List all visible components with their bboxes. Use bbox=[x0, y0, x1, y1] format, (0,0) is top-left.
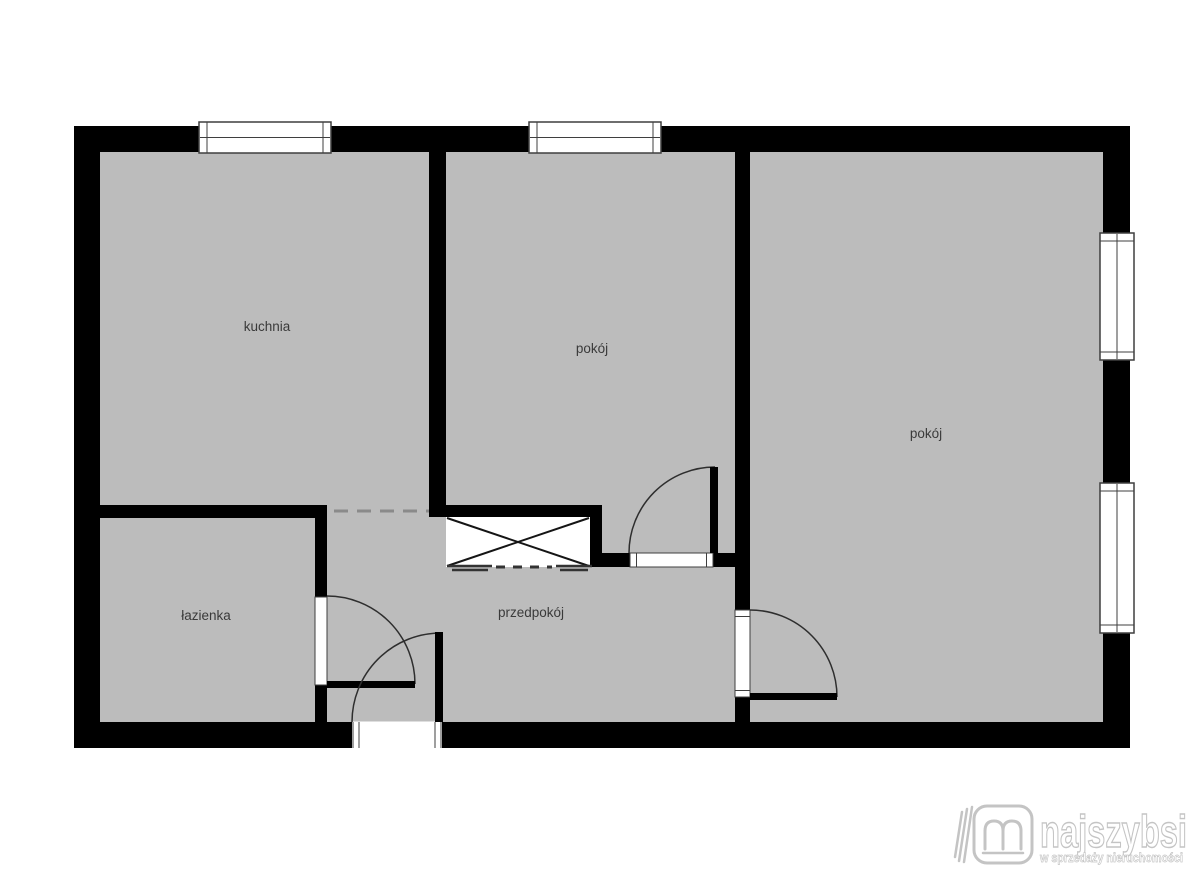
door-leaf bbox=[710, 467, 718, 553]
wall-outer-left bbox=[74, 126, 100, 748]
door-leaf bbox=[327, 681, 415, 688]
wall-wardrobe-right bbox=[590, 505, 602, 567]
room-label-przedpokoj: przedpokój bbox=[498, 605, 564, 620]
window-symbol-room1 bbox=[529, 122, 661, 153]
wall-kitchen-room-divider bbox=[429, 152, 446, 512]
wall-hall-room2-divider-upper bbox=[735, 152, 750, 610]
door-leaf bbox=[750, 693, 837, 700]
room-label-kuchnia: kuchnia bbox=[244, 319, 291, 334]
brand-watermark: najszybsi w sprzedaży nieruchomości bbox=[955, 806, 1187, 865]
window-symbol-kitchen bbox=[199, 122, 331, 153]
window-symbol-room2-lower bbox=[1100, 483, 1134, 633]
najszybsi-book-logo-icon bbox=[955, 806, 1032, 863]
door-opening bbox=[352, 722, 442, 749]
wall-room1-bottom-right-stub bbox=[713, 553, 735, 567]
wall-outer-right bbox=[1103, 126, 1130, 748]
brand-tagline: w sprzedaży nieruchomości bbox=[1039, 850, 1183, 865]
wall-wardrobe-top bbox=[429, 505, 602, 517]
floor-plan-page: kuchnia pokój pokój łazienka przedpokój … bbox=[0, 0, 1200, 878]
wall-bathroom-right-lower bbox=[315, 685, 327, 722]
wall-outer-bottom bbox=[74, 722, 1130, 748]
floor-area bbox=[97, 150, 1103, 722]
room-label-lazienka: łazienka bbox=[181, 608, 231, 623]
crossed-wardrobe-box-symbol bbox=[446, 517, 592, 570]
room-label-pokoj-1: pokój bbox=[576, 341, 608, 356]
wall-room1-bottom-left-stub bbox=[602, 553, 630, 567]
door-leaf bbox=[435, 632, 443, 722]
room-label-pokoj-2: pokój bbox=[910, 426, 942, 441]
wall-bathroom-right-upper bbox=[315, 505, 327, 600]
wall-hall-room2-divider-lower bbox=[735, 697, 750, 722]
floor-plan-drawing: kuchnia pokój pokój łazienka przedpokój … bbox=[0, 0, 1200, 878]
door-jamb bbox=[735, 610, 750, 697]
logo-pages-lines bbox=[955, 807, 972, 862]
window-symbol-room2-upper bbox=[1100, 233, 1134, 360]
wall-bathroom-top bbox=[74, 505, 327, 518]
door-jamb bbox=[315, 597, 327, 685]
door-jamb bbox=[630, 553, 713, 567]
